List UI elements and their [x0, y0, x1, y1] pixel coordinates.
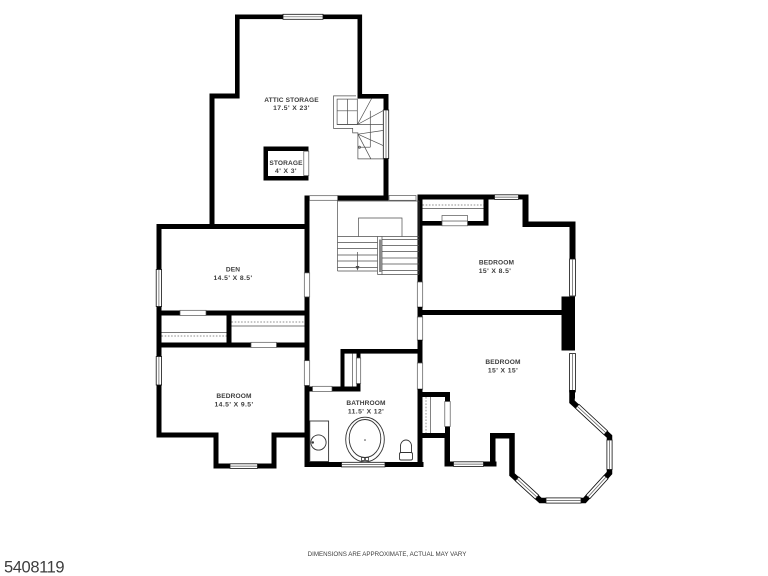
svg-text:15' X 15': 15' X 15'	[488, 368, 518, 375]
svg-text:17.5' X 23': 17.5' X 23'	[273, 105, 310, 112]
svg-text:15' X 8.5': 15' X 8.5'	[479, 268, 512, 275]
svg-text:BEDROOM: BEDROOM	[216, 393, 252, 400]
svg-text:4' X 3': 4' X 3'	[275, 168, 297, 175]
svg-text:BEDROOM: BEDROOM	[485, 359, 521, 366]
svg-text:5408119: 5408119	[4, 559, 64, 576]
svg-text:11.5' X 12': 11.5' X 12'	[348, 409, 384, 416]
svg-text:14.5' X 8.5': 14.5' X 8.5'	[213, 275, 252, 282]
svg-text:STORAGE: STORAGE	[269, 160, 303, 167]
svg-text:DIMENSIONS ARE APPROXIMATE, AC: DIMENSIONS ARE APPROXIMATE, ACTUAL MAY V…	[308, 551, 467, 558]
svg-text:BEDROOM: BEDROOM	[479, 260, 515, 267]
svg-text:BATHROOM: BATHROOM	[346, 400, 386, 407]
svg-text:14.5' X 9.5': 14.5' X 9.5'	[214, 402, 253, 409]
svg-text:DEN: DEN	[226, 267, 240, 274]
svg-text:ATTIC STORAGE: ATTIC STORAGE	[264, 97, 319, 104]
